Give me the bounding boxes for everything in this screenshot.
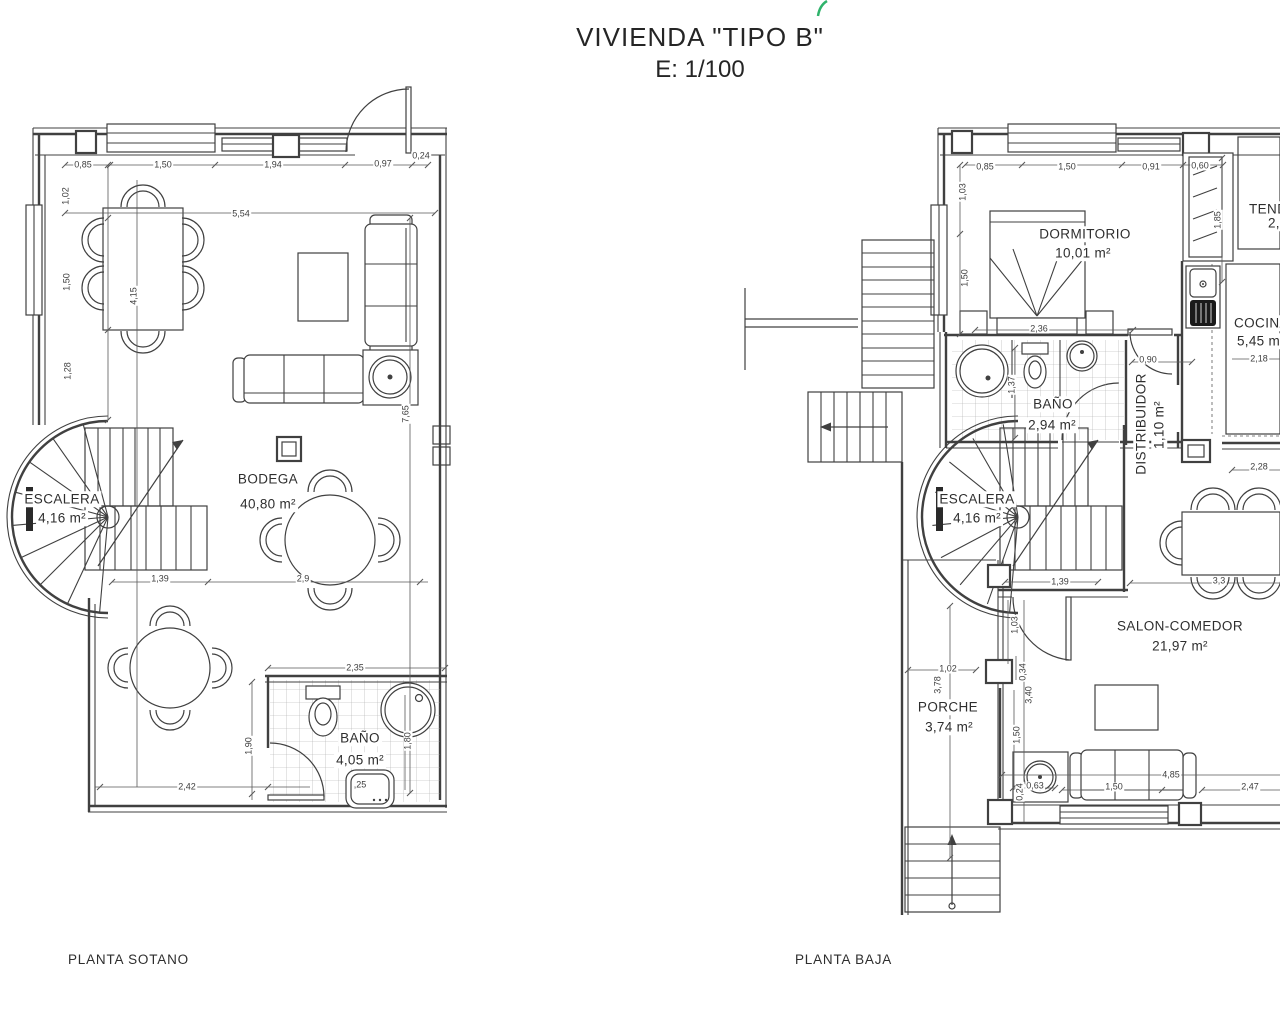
floor-plan-drawing	[0, 0, 1280, 1024]
drawing-title: VIVIENDA "TIPO B" E: 1/100	[545, 22, 855, 84]
sotano-furniture	[82, 185, 418, 730]
baja-kitchen	[1186, 264, 1280, 436]
baja-bathroom	[952, 340, 1124, 440]
baja-porch	[902, 462, 1012, 915]
baja-living-furniture	[1013, 488, 1280, 802]
blueprint-sheet: VIVIENDA "TIPO B" E: 1/100 PLANTA SOTANO…	[0, 0, 1280, 1024]
green-mark	[818, 1, 827, 16]
drawing-scale: E: 1/100	[545, 56, 855, 84]
sotano-bathroom	[265, 676, 447, 808]
baja-stairs	[917, 416, 1210, 618]
drawing-title-name: VIVIENDA "TIPO B"	[545, 22, 855, 53]
floor-plan-sotano	[7, 87, 450, 812]
sotano-stairs	[7, 416, 207, 618]
floor-plan-baja	[745, 124, 1280, 915]
baja-exterior-stairs	[745, 240, 934, 462]
